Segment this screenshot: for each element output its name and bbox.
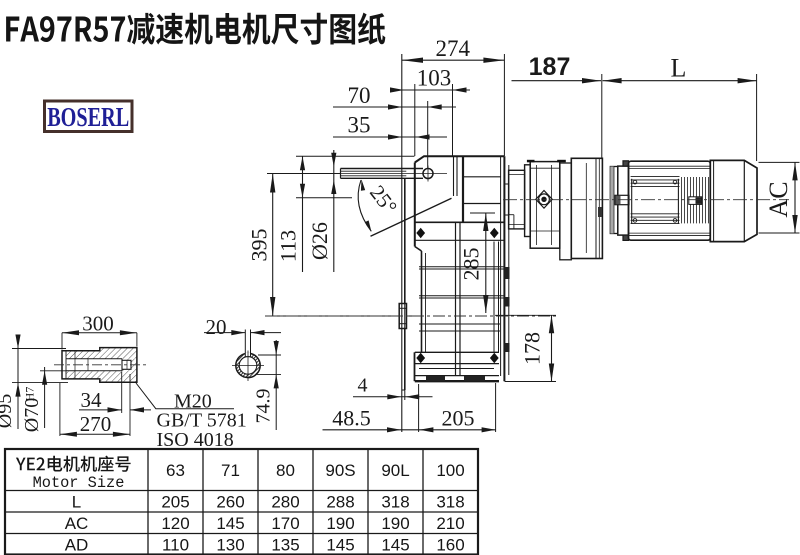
svg-text:BOSERL: BOSERL xyxy=(47,102,129,132)
svg-text:Ø26: Ø26 xyxy=(307,222,332,260)
svg-text:100: 100 xyxy=(436,461,464,480)
svg-text:Motor Size: Motor Size xyxy=(33,474,125,492)
svg-text:190: 190 xyxy=(326,514,354,533)
svg-text:260: 260 xyxy=(216,493,244,512)
svg-text:288: 288 xyxy=(326,493,354,512)
svg-text:178: 178 xyxy=(520,332,545,365)
svg-text:285: 285 xyxy=(459,248,484,281)
svg-text:205: 205 xyxy=(442,406,475,431)
svg-text:190: 190 xyxy=(381,514,409,533)
svg-text:395: 395 xyxy=(247,229,272,262)
svg-text:280: 280 xyxy=(271,493,299,512)
svg-text:70: 70 xyxy=(348,83,371,108)
svg-text:L: L xyxy=(72,493,81,512)
svg-text:120: 120 xyxy=(161,514,189,533)
svg-text:318: 318 xyxy=(381,493,409,512)
svg-text:145: 145 xyxy=(216,514,244,533)
svg-text:90S: 90S xyxy=(325,461,355,480)
svg-text:113: 113 xyxy=(276,230,301,262)
svg-text:110: 110 xyxy=(162,536,189,555)
svg-text:145: 145 xyxy=(381,536,409,555)
svg-text:187: 187 xyxy=(529,53,571,81)
svg-text:300: 300 xyxy=(82,312,114,336)
svg-text:Ø70: Ø70 xyxy=(21,398,43,432)
svg-text:71: 71 xyxy=(221,461,240,480)
svg-text:L: L xyxy=(671,54,687,83)
svg-text:90L: 90L xyxy=(381,461,409,480)
svg-text:63: 63 xyxy=(166,461,185,480)
svg-text:48.5: 48.5 xyxy=(332,406,371,431)
svg-text:103: 103 xyxy=(417,66,452,91)
svg-text:35: 35 xyxy=(348,113,371,138)
svg-text:Ø95: Ø95 xyxy=(0,394,16,428)
svg-text:145: 145 xyxy=(326,536,354,555)
svg-text:160: 160 xyxy=(436,536,464,555)
svg-text:34: 34 xyxy=(81,388,103,412)
svg-text:318: 318 xyxy=(436,493,464,512)
svg-text:4: 4 xyxy=(358,375,368,397)
svg-text:80: 80 xyxy=(276,461,295,480)
svg-text:205: 205 xyxy=(161,493,189,512)
svg-text:274: 274 xyxy=(436,36,471,61)
svg-text:270: 270 xyxy=(80,412,112,436)
svg-text:170: 170 xyxy=(271,514,299,533)
svg-text:H7: H7 xyxy=(23,387,37,402)
svg-text:ISO 4018: ISO 4018 xyxy=(157,429,234,451)
svg-text:130: 130 xyxy=(216,536,244,555)
svg-text:AC: AC xyxy=(764,181,793,217)
svg-text:74.9: 74.9 xyxy=(253,389,275,424)
svg-text:AC: AC xyxy=(65,514,89,533)
svg-text:135: 135 xyxy=(271,536,299,555)
svg-text:AD: AD xyxy=(65,536,89,555)
svg-text:20: 20 xyxy=(206,315,227,339)
svg-text:210: 210 xyxy=(436,514,464,533)
